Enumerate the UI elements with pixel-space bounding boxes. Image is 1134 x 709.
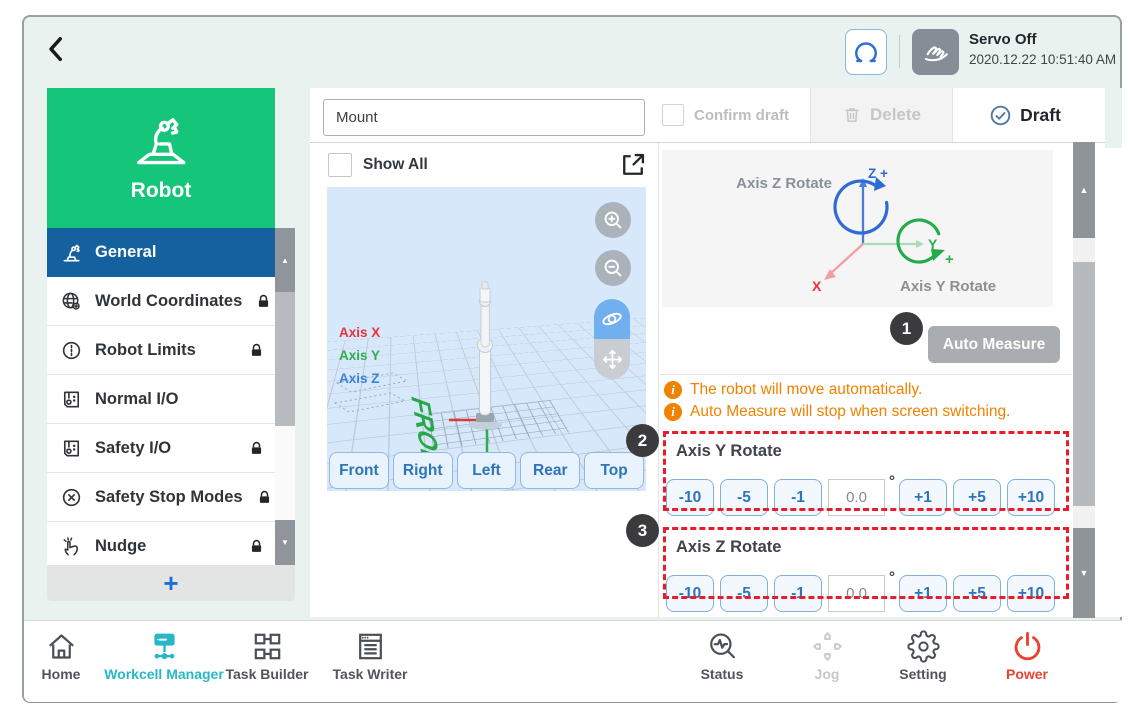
expand-icon xyxy=(619,151,647,179)
x-label: X xyxy=(812,278,822,294)
workcell-manager-icon xyxy=(148,630,181,663)
sidebar-title: Robot xyxy=(131,179,192,203)
robot-3d-viewer[interactable]: FRONT Axis XAxis YAxis Z xyxy=(327,187,646,491)
delete-label: Delete xyxy=(870,105,921,125)
workcell-name-input[interactable] xyxy=(323,99,645,136)
view-button-rear[interactable]: Rear xyxy=(520,452,580,489)
title-row-divider xyxy=(310,142,1105,143)
power-icon xyxy=(1011,630,1044,663)
sidebar-item-label: Safety I/O xyxy=(95,439,171,458)
axis-y-rotate-label: Axis Y Rotate xyxy=(900,278,996,295)
sidebar-item-safety-i-o[interactable]: Safety I/O xyxy=(47,424,275,473)
world-coordinates-icon xyxy=(60,290,83,313)
info-icon: i xyxy=(664,403,682,421)
add-workcell-item-button[interactable]: + xyxy=(47,565,295,601)
workcell-manager-screen: Servo Off 2020.12.22 10:51:40 AM Robot G… xyxy=(0,0,1134,709)
taskbar-item-task-builder[interactable]: Task Builder xyxy=(207,630,327,682)
viewer-axis-label-axis-x: Axis X xyxy=(339,321,380,344)
magnifier-plus-icon xyxy=(601,208,625,232)
sidebar-item-safety-stop-modes[interactable]: Safety Stop Modes xyxy=(47,473,275,522)
sidebar-item-label: Nudge xyxy=(95,537,146,556)
z-plus-label: Z + xyxy=(868,166,888,181)
axis-y-rotate-value-field[interactable]: 0.0 xyxy=(828,479,885,516)
orbit-icon xyxy=(600,307,624,331)
trash-icon xyxy=(842,105,862,125)
info-note: The robot will move automatically. xyxy=(690,381,922,399)
sidebar-menu: GeneralWorld CoordinatesRobot LimitsNorm… xyxy=(47,228,275,565)
sidebar-item-normal-i-o[interactable]: Normal I/O xyxy=(47,375,275,424)
robot-arm-icon xyxy=(60,241,83,264)
taskbar-item-power[interactable]: Power xyxy=(967,630,1087,682)
taskbar-item-workcell-manager[interactable]: Workcell Manager xyxy=(104,630,224,682)
axis-z-rotate-button-1[interactable]: -1 xyxy=(774,575,822,612)
robot-limits-icon xyxy=(60,339,83,362)
taskbar-item-label: Workcell Manager xyxy=(104,666,224,682)
axis-z-rotate-button-10[interactable]: -10 xyxy=(666,575,714,612)
axis-y-rotate-button-1[interactable]: +1 xyxy=(899,479,947,516)
taskbar-item-label: Setting xyxy=(899,666,946,682)
view-mode-toggle xyxy=(594,299,630,379)
sidebar-item-nudge[interactable]: Nudge xyxy=(47,522,275,565)
servo-hand-button[interactable] xyxy=(912,29,959,75)
sidebar-scrollbar[interactable]: ▲ ▼ xyxy=(275,228,295,565)
taskbar-item-status[interactable]: Status xyxy=(662,630,782,682)
y-label: Y xyxy=(928,236,938,252)
axis-z-rotate-button-5[interactable]: +5 xyxy=(953,575,1001,612)
jog-icon xyxy=(811,630,844,663)
viewer-axis-label-axis-z: Axis Z xyxy=(339,367,380,390)
info-note: Auto Measure will stop when screen switc… xyxy=(690,403,1010,421)
io-icon xyxy=(60,388,83,411)
chevron-left-icon xyxy=(51,39,60,60)
header-divider xyxy=(899,35,900,68)
axis-z-rotate-button-5[interactable]: -5 xyxy=(720,575,768,612)
taskbar: HomeWorkcell ManagerTask BuilderTask Wri… xyxy=(24,620,1122,702)
safety-stop-icon xyxy=(60,486,83,509)
taskbar-item-label: Task Writer xyxy=(333,666,408,682)
sidebar-header-robot: Robot xyxy=(47,88,275,228)
sidebar-item-label: World Coordinates xyxy=(95,292,242,311)
lock-icon xyxy=(255,488,274,507)
measure-panel-scrollbar[interactable]: ▲ ▼ xyxy=(1073,142,1095,618)
view-button-front[interactable]: Front xyxy=(329,452,389,489)
scroll-down-icon[interactable]: ▼ xyxy=(1073,528,1095,618)
axis-y-rotate-button-10[interactable]: +10 xyxy=(1007,479,1055,516)
sidebar-item-world-coordinates[interactable]: World Coordinates xyxy=(47,277,275,326)
zoom-out-button[interactable] xyxy=(595,250,631,286)
zoom-in-button[interactable] xyxy=(595,202,631,238)
axis-y-rotate-button-5[interactable]: -5 xyxy=(720,479,768,516)
gear-icon xyxy=(907,630,940,663)
axis-z-rotate-button-10[interactable]: +10 xyxy=(1007,575,1055,612)
axis-legend: Axis XAxis YAxis Z xyxy=(339,321,380,390)
view-button-left[interactable]: Left xyxy=(457,452,517,489)
axis-y-rotate-button-1[interactable]: -1 xyxy=(774,479,822,516)
info-icon: i xyxy=(664,381,682,399)
lock-icon xyxy=(247,341,266,360)
show-all-label: Show All xyxy=(363,156,428,174)
rotate-arrow-icon xyxy=(853,39,879,65)
taskbar-item-label: Power xyxy=(1006,666,1048,682)
degree-unit: ° xyxy=(889,473,895,490)
lock-icon xyxy=(247,537,266,556)
taskbar-item-label: Status xyxy=(701,666,744,682)
back-button[interactable] xyxy=(44,28,70,68)
axis-y-rotate-button-5[interactable]: +5 xyxy=(953,479,1001,516)
magnifier-minus-icon xyxy=(601,256,625,280)
nudge-icon xyxy=(60,535,83,558)
task-writer-icon xyxy=(354,630,387,663)
callout-number-3: 3 xyxy=(626,514,659,547)
status-icon xyxy=(706,630,739,663)
scrollbar-thumb[interactable] xyxy=(1073,262,1095,506)
degree-unit: ° xyxy=(889,569,895,586)
viewer-axis-label-axis-y: Axis Y xyxy=(339,344,380,367)
view-button-right[interactable]: Right xyxy=(393,452,453,489)
recovery-button[interactable] xyxy=(845,29,887,75)
taskbar-item-task-writer[interactable]: Task Writer xyxy=(310,630,430,682)
taskbar-item-label: Jog xyxy=(815,666,840,682)
scroll-down-icon[interactable]: ▼ xyxy=(275,520,295,565)
sidebar-item-robot-limits[interactable]: Robot Limits xyxy=(47,326,275,375)
axis-y-rotate-button-10[interactable]: -10 xyxy=(666,479,714,516)
scroll-up-icon[interactable]: ▲ xyxy=(1073,142,1095,238)
delete-button: Delete xyxy=(810,88,953,142)
section-title-axis-y-rotate: Axis Y Rotate xyxy=(676,442,782,461)
lock-icon xyxy=(247,439,266,458)
draft-label: Draft xyxy=(1020,105,1061,126)
confirm-draft-checkbox xyxy=(662,104,684,126)
servo-status: Servo Off xyxy=(969,31,1037,48)
sidebar-item-general[interactable]: General xyxy=(47,228,275,277)
sidebar-item-label: General xyxy=(95,243,156,262)
task-builder-icon xyxy=(251,630,284,663)
x-axis-arrow xyxy=(830,244,863,274)
view-buttons-row: FrontRightLeftRearTop xyxy=(329,452,644,489)
sidebar-item-label: Normal I/O xyxy=(95,390,178,409)
hand-gesture-icon xyxy=(920,36,952,68)
measure-divider xyxy=(660,374,1072,375)
rotation-axes-diagram: Axis Z Rotate Z + Y + Axis Y Rotate X xyxy=(662,150,1053,307)
home-icon xyxy=(45,630,78,663)
taskbar-item-setting[interactable]: Setting xyxy=(863,630,983,682)
axis-z-rotate-value-field[interactable]: 0.0 xyxy=(828,575,885,612)
sidebar-item-label: Robot Limits xyxy=(95,341,196,360)
move-arrows-icon xyxy=(601,348,624,371)
expand-viewer-button[interactable] xyxy=(619,151,647,179)
taskbar-item-label: Home xyxy=(42,666,81,682)
pan-view-button[interactable] xyxy=(594,339,630,379)
y-plus-label: + xyxy=(945,251,954,268)
datetime: 2020.12.22 10:51:40 AM xyxy=(969,52,1116,67)
callout-number-2: 2 xyxy=(626,424,659,457)
taskbar-item-home[interactable]: Home xyxy=(1,630,121,682)
lock-icon xyxy=(254,292,273,311)
draft-button[interactable]: Draft xyxy=(953,88,1097,142)
scrollbar-thumb[interactable] xyxy=(275,292,295,426)
confirm-draft-label: Confirm draft xyxy=(694,107,789,124)
panel-corner-gap xyxy=(1105,88,1122,148)
section-title-axis-z-rotate: Axis Z Rotate xyxy=(676,538,781,557)
auto-measure-button[interactable]: Auto Measure xyxy=(928,326,1060,363)
axis-z-rotate-label: Axis Z Rotate xyxy=(736,175,832,192)
callout-number-1: 1 xyxy=(890,312,923,345)
check-circle-icon xyxy=(989,104,1012,127)
taskbar-item-label: Task Builder xyxy=(226,666,309,682)
view-button-top[interactable]: Top xyxy=(584,452,644,489)
robot-arm-icon xyxy=(132,113,190,171)
show-all-checkbox[interactable] xyxy=(328,153,352,177)
axis-z-rotate-button-1[interactable]: +1 xyxy=(899,575,947,612)
io-icon xyxy=(60,437,83,460)
sidebar-item-label: Safety Stop Modes xyxy=(95,488,243,507)
rotate-view-button[interactable] xyxy=(594,299,630,339)
panel-divider xyxy=(658,143,659,617)
scroll-up-icon[interactable]: ▲ xyxy=(275,228,295,292)
